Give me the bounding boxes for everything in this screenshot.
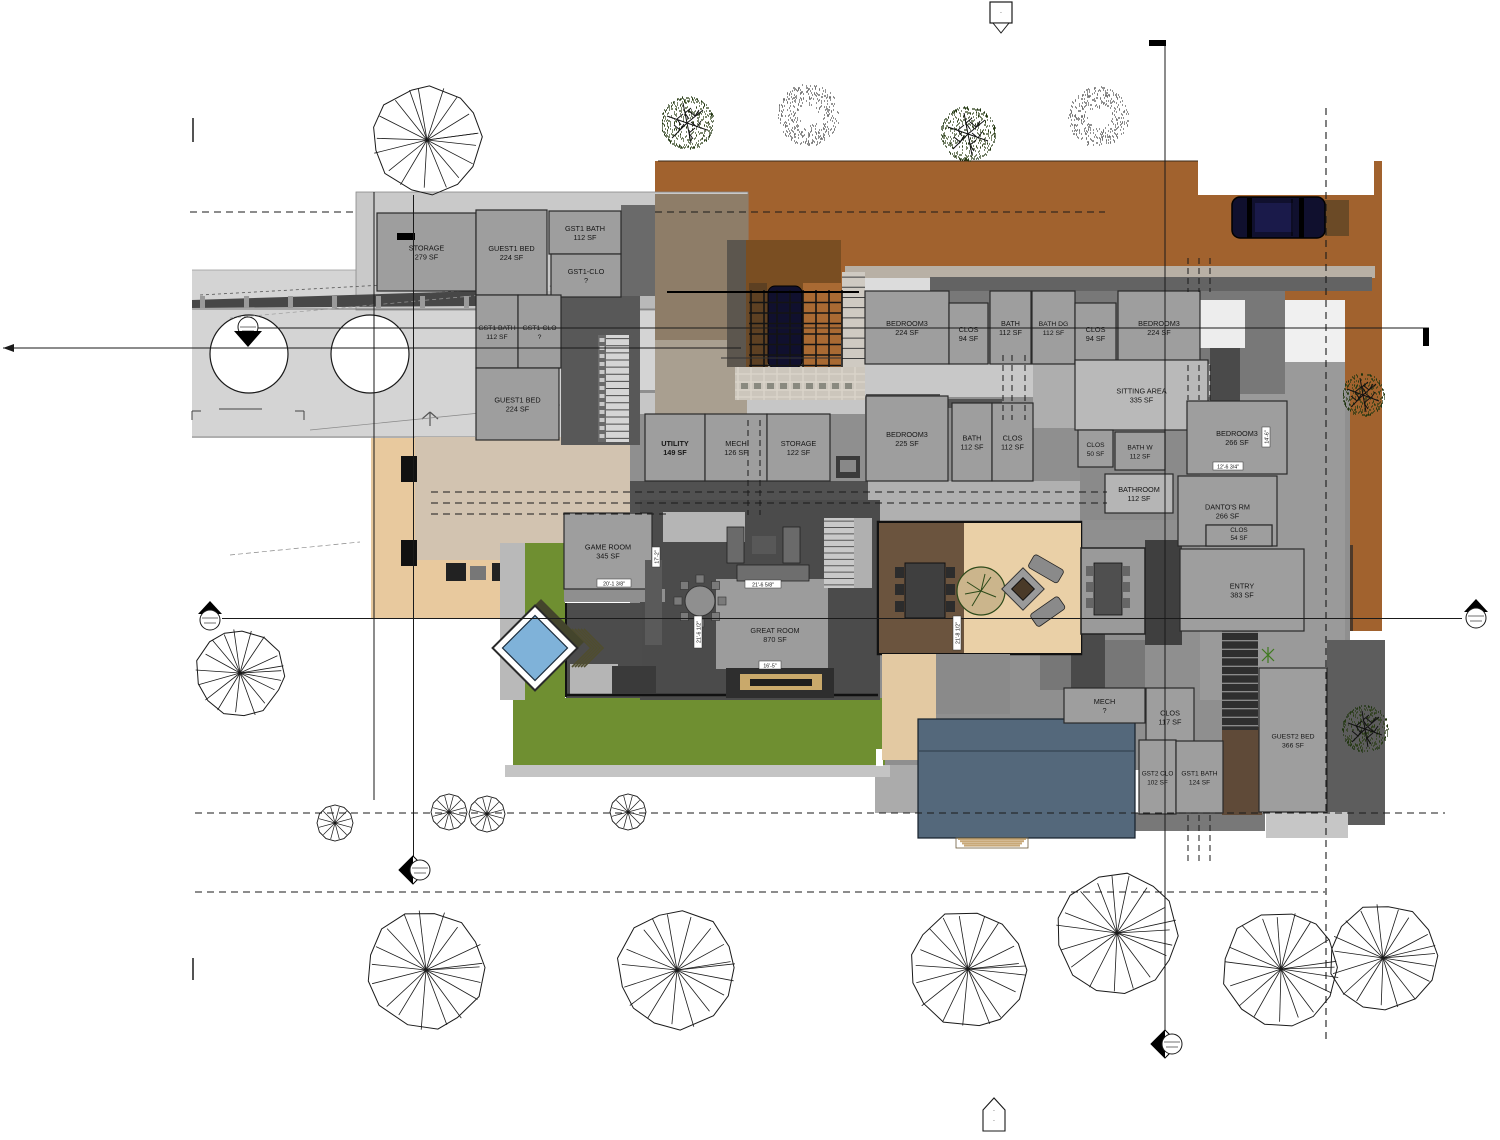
- svg-text:54 SF: 54 SF: [1230, 535, 1247, 542]
- svg-text:?: ?: [584, 276, 588, 285]
- svg-text:BATH: BATH: [963, 434, 982, 443]
- svg-text:BATH DG: BATH DG: [1039, 321, 1069, 328]
- svg-text:GAME ROOM: GAME ROOM: [585, 543, 631, 552]
- svg-text:224 SF: 224 SF: [506, 405, 530, 414]
- svg-text:STORAGE: STORAGE: [781, 439, 817, 448]
- svg-text:BEDROOM3: BEDROOM3: [886, 319, 928, 328]
- svg-text:50 SF: 50 SF: [1087, 451, 1105, 458]
- svg-text:BEDROOM3: BEDROOM3: [1216, 429, 1258, 438]
- svg-text:BATH W: BATH W: [1127, 445, 1153, 452]
- svg-text:112 SF: 112 SF: [1043, 330, 1064, 337]
- svg-text:SITTING AREA: SITTING AREA: [1116, 387, 1166, 396]
- svg-text:?: ?: [538, 334, 542, 341]
- svg-text:GST1 BATH: GST1 BATH: [565, 224, 605, 233]
- svg-text:112 SF: 112 SF: [1128, 494, 1152, 503]
- svg-text:224 SF: 224 SF: [500, 253, 524, 262]
- svg-text:UTILITY: UTILITY: [661, 439, 689, 448]
- svg-text:16'-5": 16'-5": [763, 663, 776, 669]
- svg-text:112 SF: 112 SF: [961, 443, 985, 452]
- svg-text:ENTRY: ENTRY: [1230, 582, 1255, 591]
- svg-text:BATHROOM: BATHROOM: [1118, 485, 1160, 494]
- svg-text:CLOS: CLOS: [1086, 325, 1106, 334]
- svg-text:266 SF: 266 SF: [1216, 512, 1240, 521]
- svg-text:117 SF: 117 SF: [1159, 718, 1183, 727]
- svg-text:112 SF: 112 SF: [574, 233, 598, 242]
- svg-text:112 SF: 112 SF: [1001, 443, 1025, 452]
- svg-text:CLOS: CLOS: [1003, 434, 1023, 443]
- svg-text:17'-2": 17'-2": [654, 550, 660, 563]
- svg-text:345 SF: 345 SF: [596, 552, 620, 561]
- svg-text:DANTO'S RM: DANTO'S RM: [1205, 503, 1250, 512]
- svg-text:225 SF: 225 SF: [895, 439, 919, 448]
- svg-text:STORAGE: STORAGE: [409, 244, 445, 253]
- svg-text:BATH: BATH: [1001, 319, 1020, 328]
- svg-text:CLOS: CLOS: [959, 325, 979, 334]
- svg-text:12'-6 3/4": 12'-6 3/4": [1217, 464, 1239, 470]
- svg-text:21'-6 5/8": 21'-6 5/8": [752, 582, 774, 588]
- svg-text:224 SF: 224 SF: [895, 328, 919, 337]
- svg-text:GUEST1 BED: GUEST1 BED: [494, 396, 540, 405]
- svg-text:GUEST2 BED: GUEST2 BED: [1271, 734, 1314, 741]
- svg-text:335 SF: 335 SF: [1130, 396, 1154, 405]
- svg-text:?: ?: [1102, 706, 1106, 715]
- svg-text:366 SF: 366 SF: [1282, 743, 1304, 750]
- svg-text:870 SF: 870 SF: [763, 635, 787, 644]
- svg-text:14'-6": 14'-6": [1264, 430, 1270, 443]
- svg-text:GUEST1 BED: GUEST1 BED: [488, 244, 534, 253]
- svg-text:CLOS: CLOS: [1087, 442, 1106, 449]
- svg-text:20'-1 3/8": 20'-1 3/8": [603, 581, 625, 587]
- svg-text:266 SF: 266 SF: [1225, 438, 1249, 447]
- svg-text:MECH: MECH: [725, 439, 747, 448]
- svg-text:126 SF: 126 SF: [724, 448, 748, 457]
- svg-text:BEDROOM3: BEDROOM3: [1138, 319, 1180, 328]
- svg-text:21'-8 1/2": 21'-8 1/2": [955, 622, 961, 644]
- svg-text:GST1-CLO: GST1-CLO: [568, 267, 605, 276]
- svg-text:112 SF: 112 SF: [486, 334, 507, 341]
- svg-text:124 SF: 124 SF: [1189, 780, 1210, 787]
- svg-text:112 SF: 112 SF: [999, 328, 1023, 337]
- svg-text:94 SF: 94 SF: [959, 334, 979, 343]
- svg-text:279 SF: 279 SF: [415, 253, 439, 262]
- svg-text:224 SF: 224 SF: [1147, 328, 1171, 337]
- svg-text:94 SF: 94 SF: [1086, 334, 1106, 343]
- svg-text:21'-6 1/2": 21'-6 1/2": [696, 621, 702, 643]
- svg-text:BEDROOM3: BEDROOM3: [886, 430, 928, 439]
- svg-text:149 SF: 149 SF: [663, 448, 687, 457]
- svg-text:GST2 CLO: GST2 CLO: [1142, 771, 1174, 778]
- svg-text:MECH: MECH: [1094, 697, 1116, 706]
- svg-text:112 SF: 112 SF: [1130, 454, 1151, 461]
- svg-text:GREAT ROOM: GREAT ROOM: [750, 626, 799, 635]
- svg-text:383 SF: 383 SF: [1230, 591, 1254, 600]
- svg-text:GST1 BATH: GST1 BATH: [1181, 771, 1217, 778]
- svg-text:122 SF: 122 SF: [787, 448, 811, 457]
- svg-text:CLOS: CLOS: [1160, 709, 1180, 718]
- svg-text:CLOS: CLOS: [1230, 527, 1247, 534]
